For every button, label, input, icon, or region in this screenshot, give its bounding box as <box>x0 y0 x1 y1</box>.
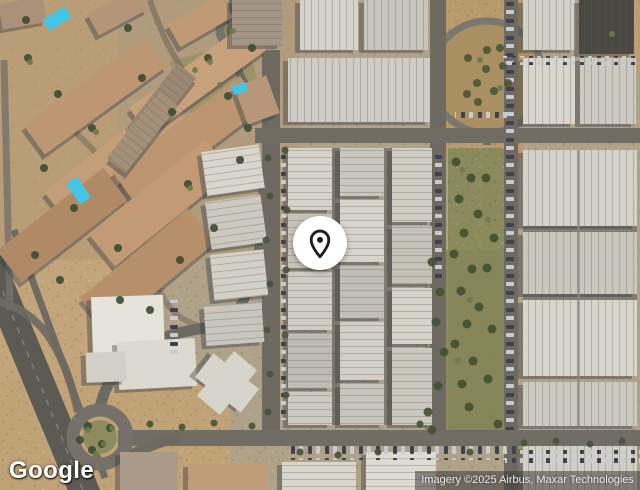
map-feature <box>265 155 272 162</box>
map-feature <box>553 438 560 445</box>
map-feature <box>176 256 184 264</box>
map-feature <box>282 147 289 154</box>
map-feature <box>482 174 491 183</box>
map-feature <box>114 244 122 252</box>
map-feature <box>484 375 493 384</box>
map-feature <box>523 0 575 50</box>
map-feature <box>340 148 384 196</box>
map-feature <box>609 31 615 37</box>
map-feature <box>300 0 358 50</box>
map-feature <box>224 92 232 100</box>
map-feature <box>118 430 640 446</box>
map-feature <box>288 272 332 330</box>
map-feature <box>85 351 126 382</box>
map-feature <box>577 150 580 426</box>
map-feature <box>500 56 638 65</box>
map-feature <box>263 237 270 244</box>
map-feature <box>477 57 483 63</box>
map-feature <box>204 302 265 346</box>
map-feature <box>281 150 289 420</box>
map-feature <box>22 16 30 24</box>
map-feature <box>267 371 274 378</box>
map-feature <box>283 267 290 274</box>
map-feature <box>267 193 274 200</box>
map-feature <box>146 306 154 314</box>
map-feature <box>504 79 512 87</box>
map-feature <box>31 251 39 259</box>
map-feature <box>284 207 291 214</box>
map-feature <box>523 58 575 124</box>
map-feature <box>488 325 497 334</box>
map-feature <box>117 338 197 390</box>
map-feature <box>85 427 91 433</box>
imagery-attribution: Imagery ©2025 Airbus, Maxar Technologies <box>415 471 640 490</box>
map-feature <box>207 59 213 65</box>
map-feature <box>494 420 503 429</box>
map-feature <box>619 438 626 445</box>
map-feature <box>465 403 474 412</box>
map-feature <box>455 195 464 204</box>
map-feature <box>282 462 356 490</box>
map-feature <box>201 144 265 196</box>
map-feature <box>587 441 594 448</box>
map-feature <box>375 449 382 456</box>
map-feature <box>580 58 636 124</box>
map-feature <box>460 229 469 238</box>
satellite-map-view[interactable]: Google Imagery ©2025 Airbus, Maxar Techn… <box>0 0 640 490</box>
map-feature <box>340 266 384 318</box>
map-feature <box>424 408 433 417</box>
map-feature <box>464 54 472 62</box>
map-feature <box>432 318 441 327</box>
map-feature <box>497 85 503 91</box>
map-feature <box>217 82 223 88</box>
map-feature <box>188 464 268 490</box>
map-feature <box>469 357 478 366</box>
map-feature <box>364 0 428 50</box>
map-feature <box>124 24 132 32</box>
map-feature <box>392 226 432 284</box>
map-feature <box>283 392 290 399</box>
map-feature <box>440 348 449 357</box>
map-feature <box>436 288 445 297</box>
map-feature <box>392 288 432 344</box>
map-feature <box>205 194 267 249</box>
map-feature <box>340 200 384 262</box>
map-feature <box>505 450 640 463</box>
map-feature <box>56 276 64 284</box>
map-feature <box>210 249 269 300</box>
map-feature <box>27 59 33 65</box>
map-feature <box>521 440 528 447</box>
map-feature <box>282 332 289 339</box>
map-feature <box>499 62 507 70</box>
map-feature <box>255 128 640 143</box>
map-feature <box>458 380 467 389</box>
map-feature <box>290 446 520 460</box>
map-feature <box>474 98 482 106</box>
map-feature <box>297 449 304 456</box>
map-feature <box>451 340 460 349</box>
map-feature <box>288 58 430 122</box>
map-feature <box>428 426 437 435</box>
map-feature <box>455 112 510 122</box>
map-feature <box>109 425 115 431</box>
map-feature <box>248 44 256 52</box>
map-feature <box>232 0 282 46</box>
map-feature <box>93 129 99 135</box>
map-feature <box>483 264 492 273</box>
map-feature <box>147 421 154 428</box>
map-feature <box>265 409 272 416</box>
map-feature <box>230 28 236 34</box>
map-feature <box>428 258 437 267</box>
google-logo[interactable]: Google <box>9 457 94 485</box>
map-feature <box>335 452 342 459</box>
map-feature <box>70 204 78 212</box>
map-feature <box>187 185 193 191</box>
map-feature <box>467 449 474 456</box>
map-feature <box>455 357 461 363</box>
map-feature <box>170 300 180 355</box>
map-feature <box>116 296 124 304</box>
map-feature <box>483 46 491 54</box>
map-feature <box>54 90 62 98</box>
map-feature <box>138 74 146 82</box>
map-feature <box>417 421 424 428</box>
map-feature <box>120 452 178 490</box>
map-feature <box>236 156 244 164</box>
map-feature <box>264 327 271 334</box>
map-feature <box>490 234 499 243</box>
map-feature <box>211 420 218 427</box>
map-feature <box>179 424 186 431</box>
map-feature <box>101 441 107 447</box>
map-feature <box>288 148 332 210</box>
map-feature <box>168 108 176 116</box>
map-feature <box>40 164 48 172</box>
map-feature <box>467 297 473 303</box>
map-feature <box>435 150 444 280</box>
map-feature <box>76 436 84 444</box>
map-feature <box>459 167 465 173</box>
location-pin-icon <box>303 226 337 260</box>
map-feature <box>452 158 461 167</box>
map-feature <box>392 148 432 222</box>
location-pin-marker[interactable] <box>293 216 347 270</box>
map-feature <box>249 423 256 430</box>
map-feature <box>496 44 504 52</box>
map-feature <box>468 265 477 274</box>
map-feature <box>485 217 491 223</box>
map-feature <box>267 281 274 288</box>
map-feature <box>474 210 483 219</box>
map-feature <box>490 87 498 95</box>
map-feature <box>340 384 384 425</box>
map-feature <box>473 79 481 87</box>
map-feature <box>192 67 198 73</box>
map-feature <box>475 303 484 312</box>
map-feature <box>244 124 252 132</box>
map-feature <box>288 392 332 425</box>
map-feature <box>450 250 459 259</box>
map-feature <box>482 65 490 73</box>
map-feature <box>210 224 218 232</box>
map-feature <box>579 0 634 54</box>
map-feature <box>467 174 476 183</box>
map-feature <box>463 90 471 98</box>
map-feature <box>434 382 443 391</box>
map-feature <box>340 322 384 380</box>
map-feature <box>457 287 466 296</box>
map-feature <box>463 320 472 329</box>
map-feature <box>288 334 332 388</box>
